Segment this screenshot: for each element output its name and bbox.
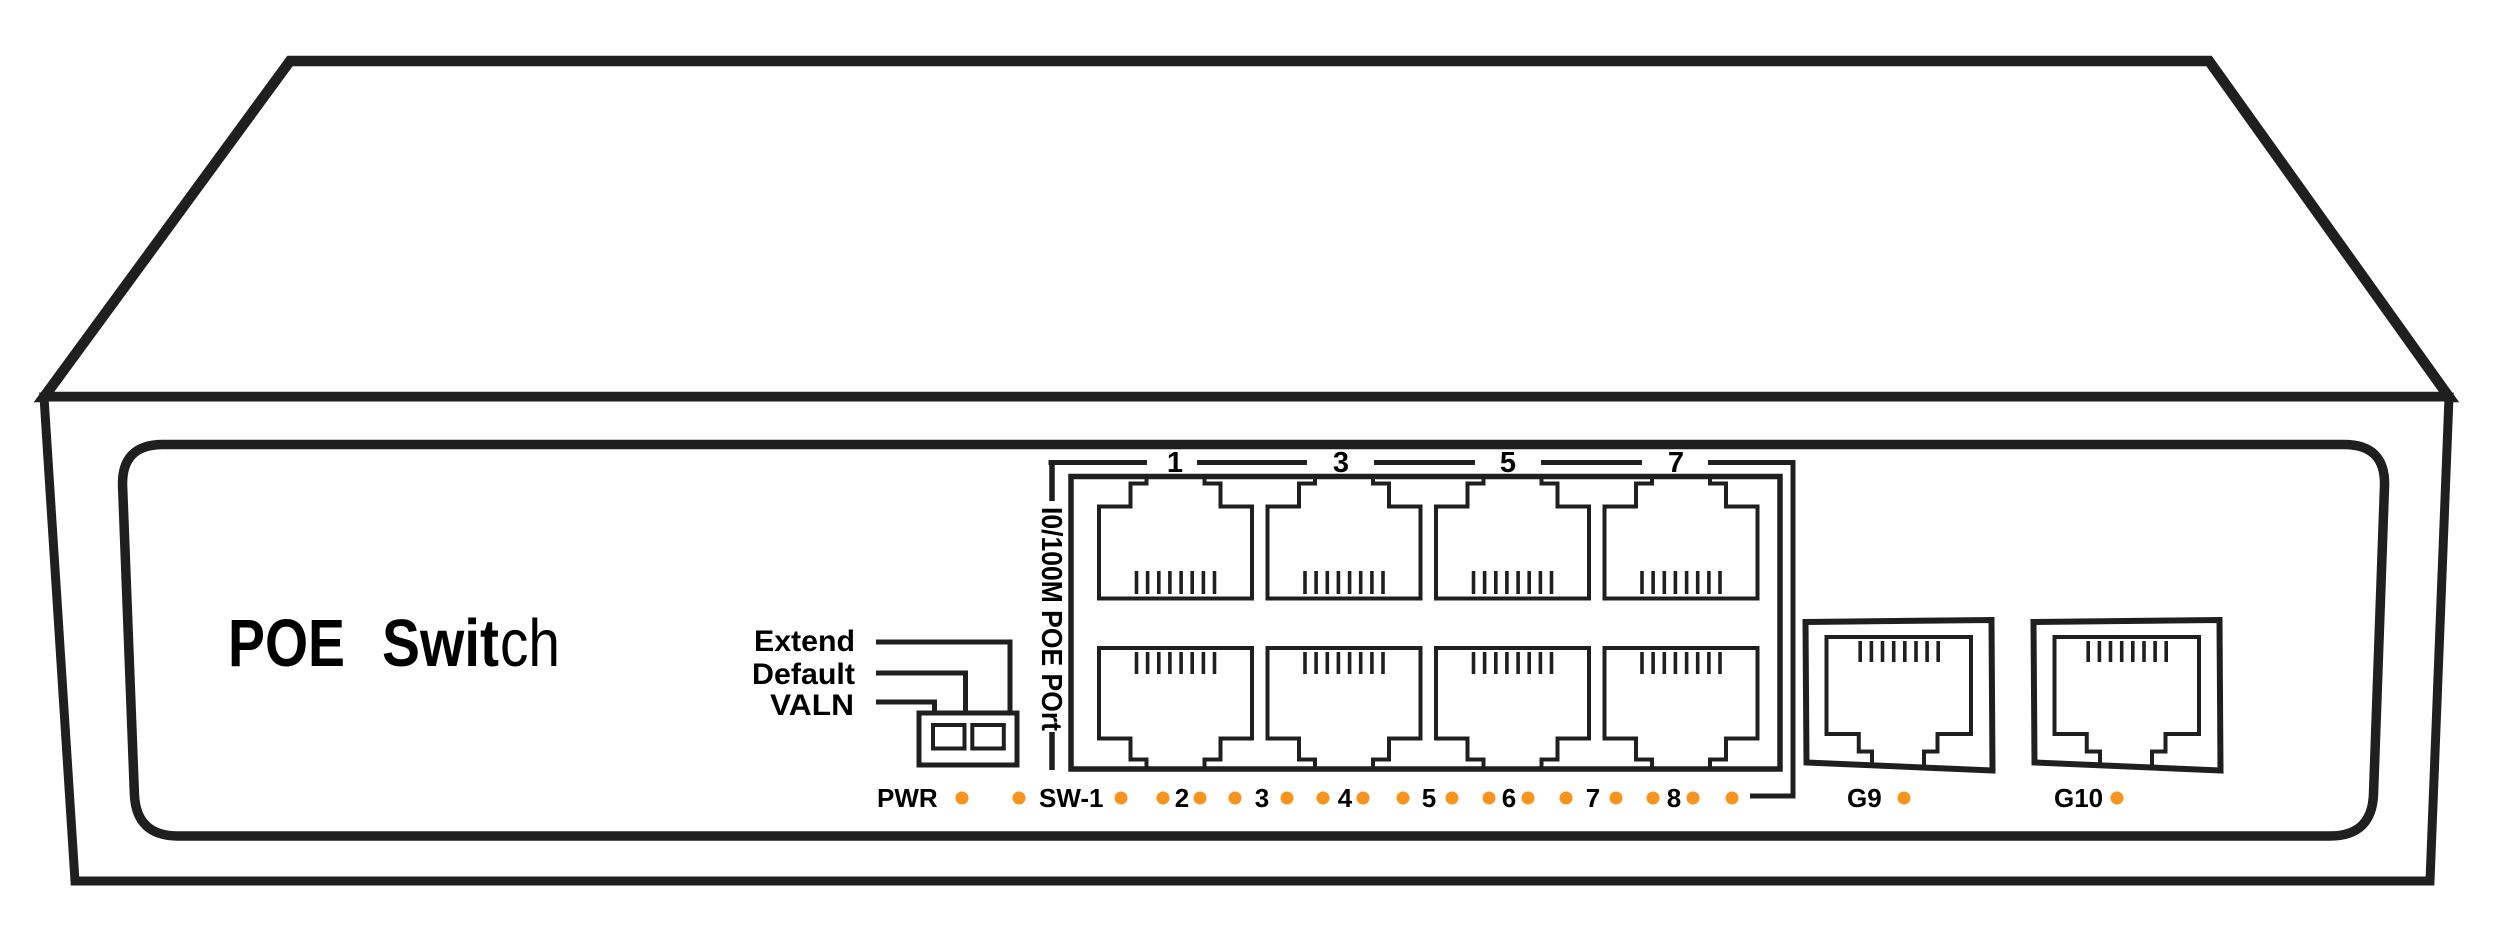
svg-text:Extend: Extend [754,625,855,658]
svg-text:5: 5 [1422,783,1436,813]
svg-text:Default: Default [752,658,855,691]
svg-text:8: 8 [1667,783,1681,813]
svg-text:SW-1: SW-1 [1039,783,1103,813]
svg-text:PWR: PWR [877,783,938,813]
svg-text:2: 2 [1175,783,1189,813]
svg-text:G10: G10 [2054,783,2103,813]
svg-text:6: 6 [1502,783,1516,813]
svg-text:VALN: VALN [770,689,854,722]
svg-text:ch: ch [500,606,560,681]
svg-text:POE: POE [228,606,345,681]
svg-text:G9: G9 [1847,783,1882,813]
svg-text:I0/100M POE POrt: I0/100M POE POrt [1035,507,1067,731]
svg-text:Swit: Swit [382,606,499,681]
svg-text:4: 4 [1338,783,1353,813]
svg-text:7: 7 [1586,783,1600,813]
svg-text:3: 3 [1255,783,1269,813]
